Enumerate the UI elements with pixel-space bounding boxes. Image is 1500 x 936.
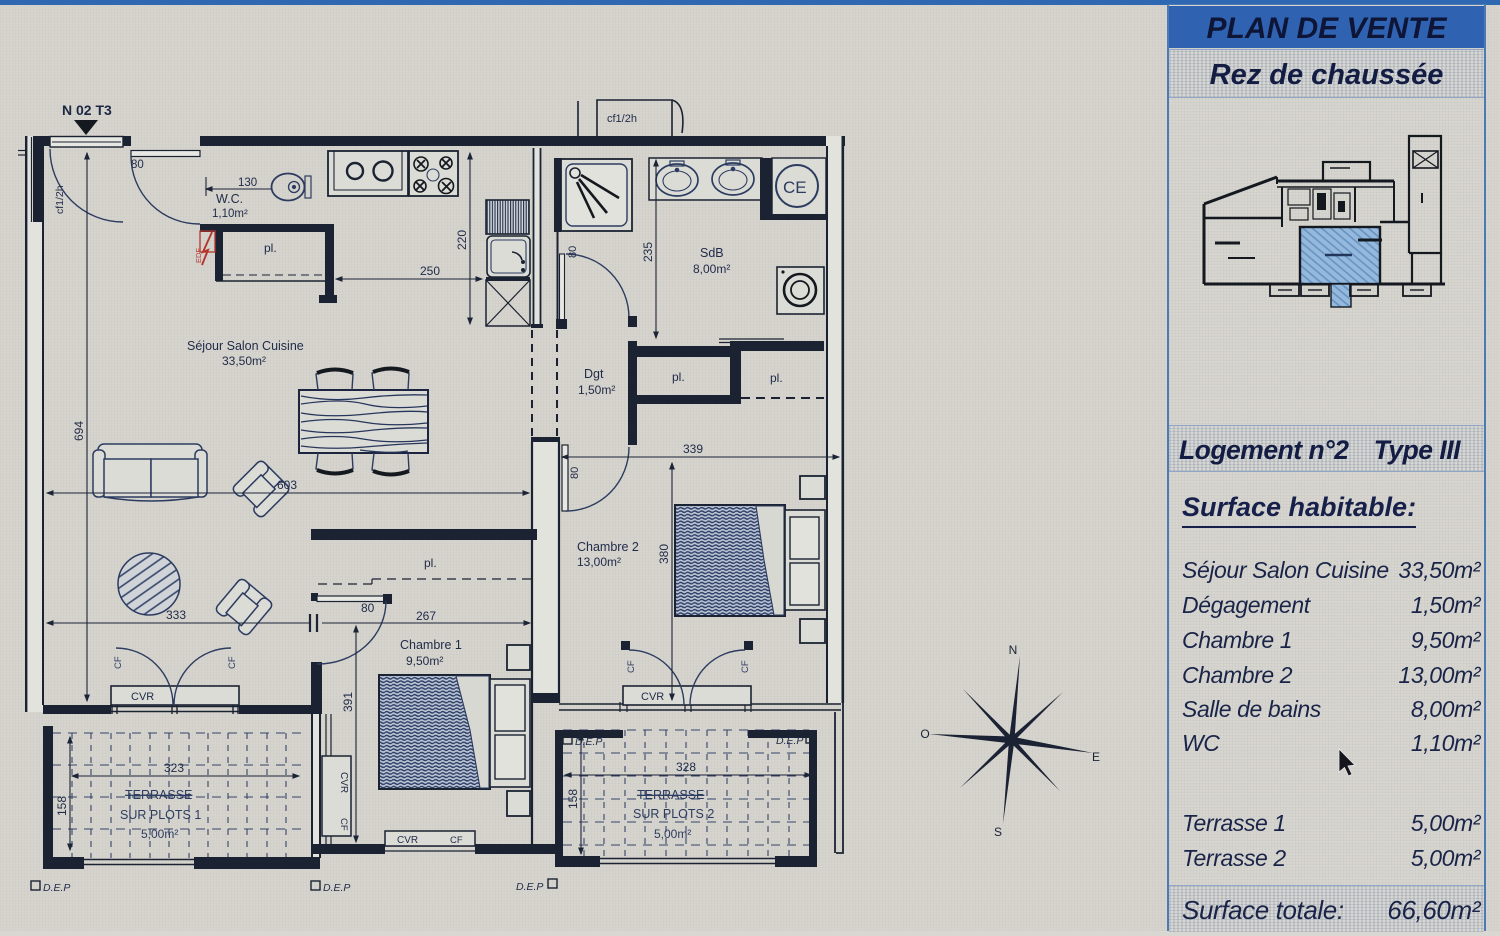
- svg-text:pl.: pl.: [264, 241, 277, 255]
- svg-text:694: 694: [72, 421, 86, 441]
- svg-text:CF: CF: [227, 656, 238, 669]
- svg-text:N 02 T3: N 02 T3: [62, 102, 112, 118]
- svg-text:80: 80: [567, 246, 579, 258]
- svg-text:CF: CF: [113, 656, 124, 669]
- svg-text:Chambre 2: Chambre 2: [577, 540, 639, 554]
- svg-text:TERRASSE: TERRASSE: [637, 788, 704, 802]
- svg-text:CVR: CVR: [338, 772, 349, 793]
- svg-text:603: 603: [277, 478, 297, 492]
- svg-text:130: 130: [238, 177, 257, 189]
- svg-text:CF: CF: [740, 660, 751, 673]
- svg-text:S: S: [994, 825, 1002, 839]
- svg-text:Chambre 1: Chambre 1: [400, 638, 462, 652]
- svg-text:13,00m²: 13,00m²: [577, 555, 621, 569]
- svg-text:80: 80: [131, 159, 144, 171]
- svg-text:CVR: CVR: [131, 691, 154, 703]
- svg-text:SUR PLOTS 1: SUR PLOTS 1: [120, 808, 201, 822]
- svg-text:E: E: [1092, 750, 1100, 764]
- svg-text:220: 220: [455, 230, 469, 250]
- svg-text:CF: CF: [450, 835, 463, 846]
- svg-text:D.E.P: D.E.P: [43, 882, 70, 894]
- svg-text:33,50m²: 33,50m²: [222, 354, 266, 368]
- svg-text:CF: CF: [626, 660, 637, 673]
- svg-text:D.E.P: D.E.P: [323, 882, 350, 894]
- svg-text:D.E.P: D.E.P: [776, 735, 803, 747]
- svg-text:5,00m²: 5,00m²: [141, 827, 178, 841]
- svg-text:EDF: EDF: [194, 248, 203, 263]
- svg-text:Dgt: Dgt: [584, 367, 604, 381]
- svg-text:CVR: CVR: [397, 835, 418, 846]
- svg-text:158: 158: [55, 796, 69, 816]
- svg-text:SdB: SdB: [700, 246, 724, 260]
- svg-text:pl.: pl.: [770, 371, 783, 385]
- svg-text:D.E.P: D.E.P: [516, 881, 543, 893]
- svg-text:391: 391: [341, 692, 355, 712]
- svg-text:CE: CE: [783, 178, 807, 197]
- svg-text:CVR: CVR: [641, 691, 664, 703]
- svg-text:Séjour Salon Cuisine: Séjour Salon Cuisine: [187, 339, 304, 353]
- svg-text:1,50m²: 1,50m²: [578, 383, 615, 397]
- svg-text:8,00m²: 8,00m²: [693, 262, 730, 276]
- svg-text:9,50m²: 9,50m²: [406, 654, 443, 668]
- svg-text:80: 80: [569, 467, 581, 479]
- svg-text:pl.: pl.: [424, 556, 437, 570]
- svg-text:235: 235: [641, 242, 655, 262]
- svg-text:250: 250: [420, 264, 440, 278]
- svg-text:158: 158: [566, 789, 580, 809]
- svg-text:D.E.P: D.E.P: [575, 736, 602, 748]
- svg-text:323: 323: [164, 761, 184, 775]
- svg-text:SUR PLOTS 2: SUR PLOTS 2: [633, 807, 714, 821]
- svg-text:333: 333: [166, 608, 186, 622]
- svg-text:O: O: [920, 727, 929, 741]
- svg-text:5,00m²: 5,00m²: [654, 827, 691, 841]
- svg-text:N: N: [1009, 643, 1018, 657]
- svg-text:328: 328: [676, 760, 696, 774]
- svg-text:380: 380: [657, 544, 671, 564]
- svg-text:cf1/2h: cf1/2h: [54, 185, 66, 214]
- svg-text:267: 267: [416, 609, 436, 623]
- svg-text:80: 80: [361, 601, 375, 615]
- svg-text:339: 339: [683, 442, 703, 456]
- svg-text:CF: CF: [338, 818, 349, 831]
- svg-text:pl.: pl.: [672, 370, 685, 384]
- svg-text:1,10m²: 1,10m²: [212, 208, 248, 220]
- svg-text:cf1/2h: cf1/2h: [607, 113, 637, 125]
- svg-text:TERRASSE: TERRASSE: [125, 788, 192, 802]
- svg-text:W.C.: W.C.: [216, 192, 243, 206]
